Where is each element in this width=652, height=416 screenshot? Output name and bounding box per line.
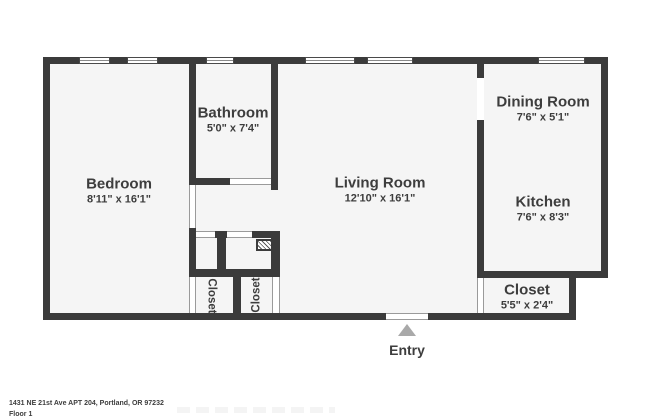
door-opening	[477, 278, 484, 313]
room-dims: 8'11" x 16'1"	[86, 194, 152, 207]
room-label-dining-room: Dining Room 7'6" x 5'1"	[496, 93, 589, 124]
window	[127, 57, 158, 64]
window	[206, 57, 234, 64]
room-dims: 7'6" x 8'3"	[515, 212, 570, 225]
wall	[271, 231, 280, 277]
wall	[428, 313, 576, 320]
address-text: 1431 NE 21st Ave APT 204, Portland, OR 9…	[9, 400, 164, 407]
room-label-entry-closet: Closet 5'5" x 2'4"	[501, 281, 553, 312]
room-label-living-room: Living Room 12'10" x 16'1"	[335, 174, 426, 205]
floor-number-text: Floor 1	[9, 411, 32, 416]
wall-opening	[477, 78, 484, 120]
wall	[215, 231, 227, 238]
wall	[477, 120, 484, 271]
room-name: Closet	[501, 281, 553, 298]
door-opening	[272, 277, 280, 313]
wall	[43, 313, 386, 320]
wall	[271, 64, 278, 190]
wall	[477, 64, 484, 78]
wall	[233, 277, 241, 313]
room-label-bathroom: Bathroom 5'0" x 7'4"	[198, 104, 269, 135]
entry-label: Entry	[389, 342, 425, 358]
wall	[43, 57, 50, 320]
window	[79, 57, 110, 64]
room-name: Closet	[250, 277, 263, 312]
door-opening	[230, 178, 271, 185]
room-dims: 5'0" x 7'4"	[198, 123, 269, 136]
wall	[189, 269, 278, 277]
window	[305, 57, 355, 64]
floorplan-canvas: Bedroom 8'11" x 16'1" Bathroom 5'0" x 7'…	[0, 0, 652, 416]
wall	[601, 57, 608, 278]
hatched-fixture-icon	[256, 239, 273, 251]
room-label-closet-right: Closet	[250, 277, 263, 312]
room-name: Living Room	[335, 174, 426, 191]
door-opening	[189, 185, 196, 228]
faint-watermark	[177, 407, 335, 413]
window	[367, 57, 413, 64]
room-name: Closet	[204, 278, 217, 313]
room-name: Dining Room	[496, 93, 589, 110]
wall	[477, 271, 608, 278]
door-opening	[227, 231, 252, 238]
room-name: Bathroom	[198, 104, 269, 121]
entry-arrow-icon	[398, 324, 416, 336]
wall	[217, 238, 226, 269]
room-dims: 5'5" x 2'4"	[501, 300, 553, 313]
room-label-kitchen: Kitchen 7'6" x 8'3"	[515, 193, 570, 224]
room-name: Kitchen	[515, 193, 570, 210]
window	[538, 57, 585, 64]
door-opening	[196, 231, 215, 238]
wall	[189, 64, 196, 185]
wall	[569, 278, 576, 313]
door-opening	[189, 277, 196, 313]
entry-door-opening	[386, 313, 428, 320]
room-label-closet-left: Closet	[204, 278, 217, 313]
room-label-bedroom: Bedroom 8'11" x 16'1"	[86, 175, 152, 206]
room-dims: 12'10" x 16'1"	[335, 193, 426, 206]
wall	[189, 178, 230, 185]
room-dims: 7'6" x 5'1"	[496, 112, 589, 125]
room-name: Bedroom	[86, 175, 152, 192]
